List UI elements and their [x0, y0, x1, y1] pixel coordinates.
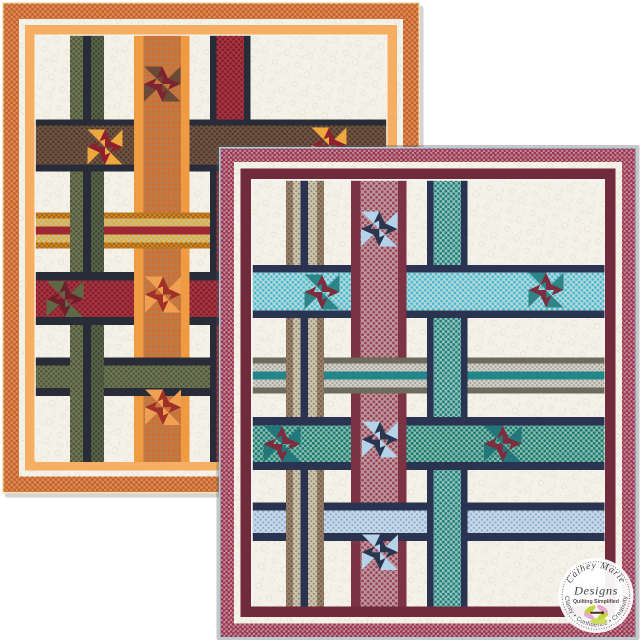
svg-text:Designs: Designs [573, 586, 618, 598]
svg-text:Quilting Simplified: Quilting Simplified [573, 599, 619, 605]
